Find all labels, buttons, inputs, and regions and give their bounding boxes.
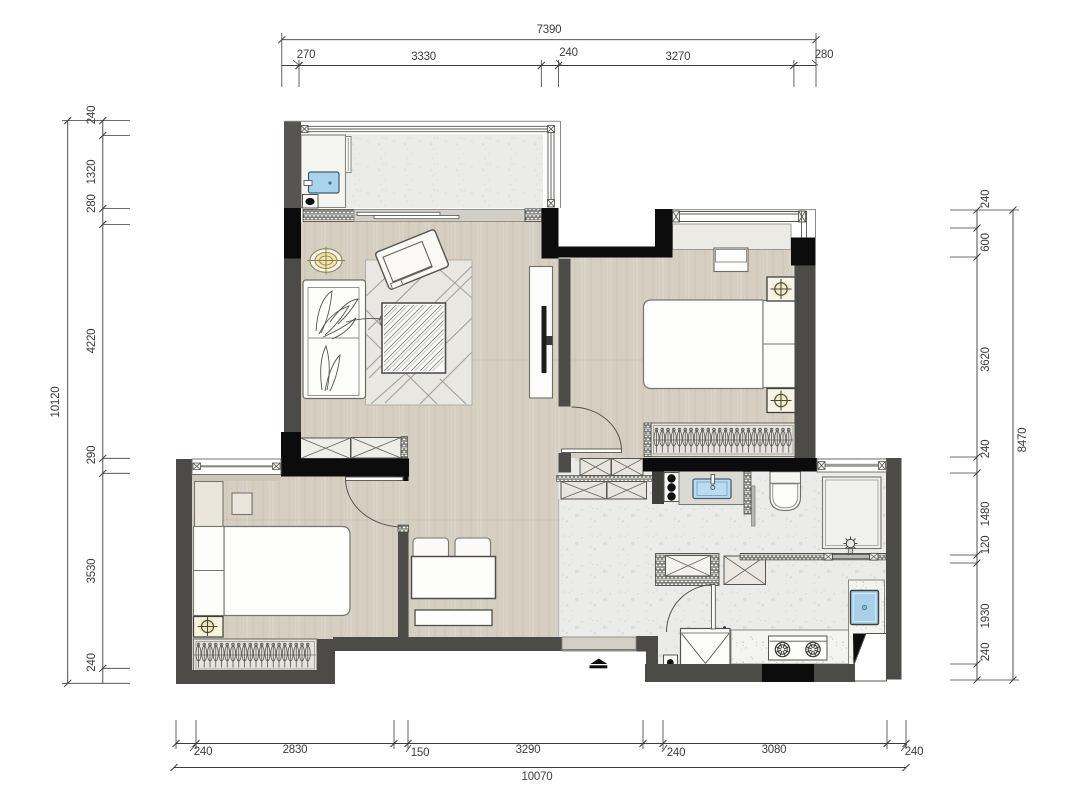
svg-text:1480: 1480 [980,502,992,527]
svg-text:280: 280 [815,49,834,61]
svg-text:2830: 2830 [283,744,308,756]
svg-text:290: 290 [86,446,98,465]
svg-text:240: 240 [86,106,98,125]
svg-text:240: 240 [667,747,686,759]
svg-text:1930: 1930 [980,604,992,629]
svg-text:3290: 3290 [516,744,541,756]
svg-text:4220: 4220 [86,329,98,354]
svg-text:3530: 3530 [86,559,98,584]
svg-text:150: 150 [411,747,430,759]
svg-text:10120: 10120 [50,387,62,418]
svg-text:3080: 3080 [762,744,787,756]
svg-text:7390: 7390 [537,24,562,36]
svg-text:3270: 3270 [666,51,691,63]
svg-text:280: 280 [86,194,98,213]
svg-text:3330: 3330 [411,51,436,63]
svg-text:240: 240 [980,440,992,459]
svg-text:8470: 8470 [1017,428,1029,453]
svg-text:240: 240 [980,643,992,662]
svg-text:240: 240 [905,746,924,758]
svg-text:120: 120 [980,536,992,555]
svg-text:3620: 3620 [980,347,992,372]
svg-text:240: 240 [86,653,98,672]
svg-text:240: 240 [559,47,578,59]
svg-text:1320: 1320 [86,160,98,185]
svg-text:600: 600 [980,233,992,252]
svg-text:270: 270 [297,49,316,61]
svg-text:240: 240 [980,190,992,209]
svg-text:240: 240 [194,746,213,758]
svg-text:10070: 10070 [522,771,553,783]
